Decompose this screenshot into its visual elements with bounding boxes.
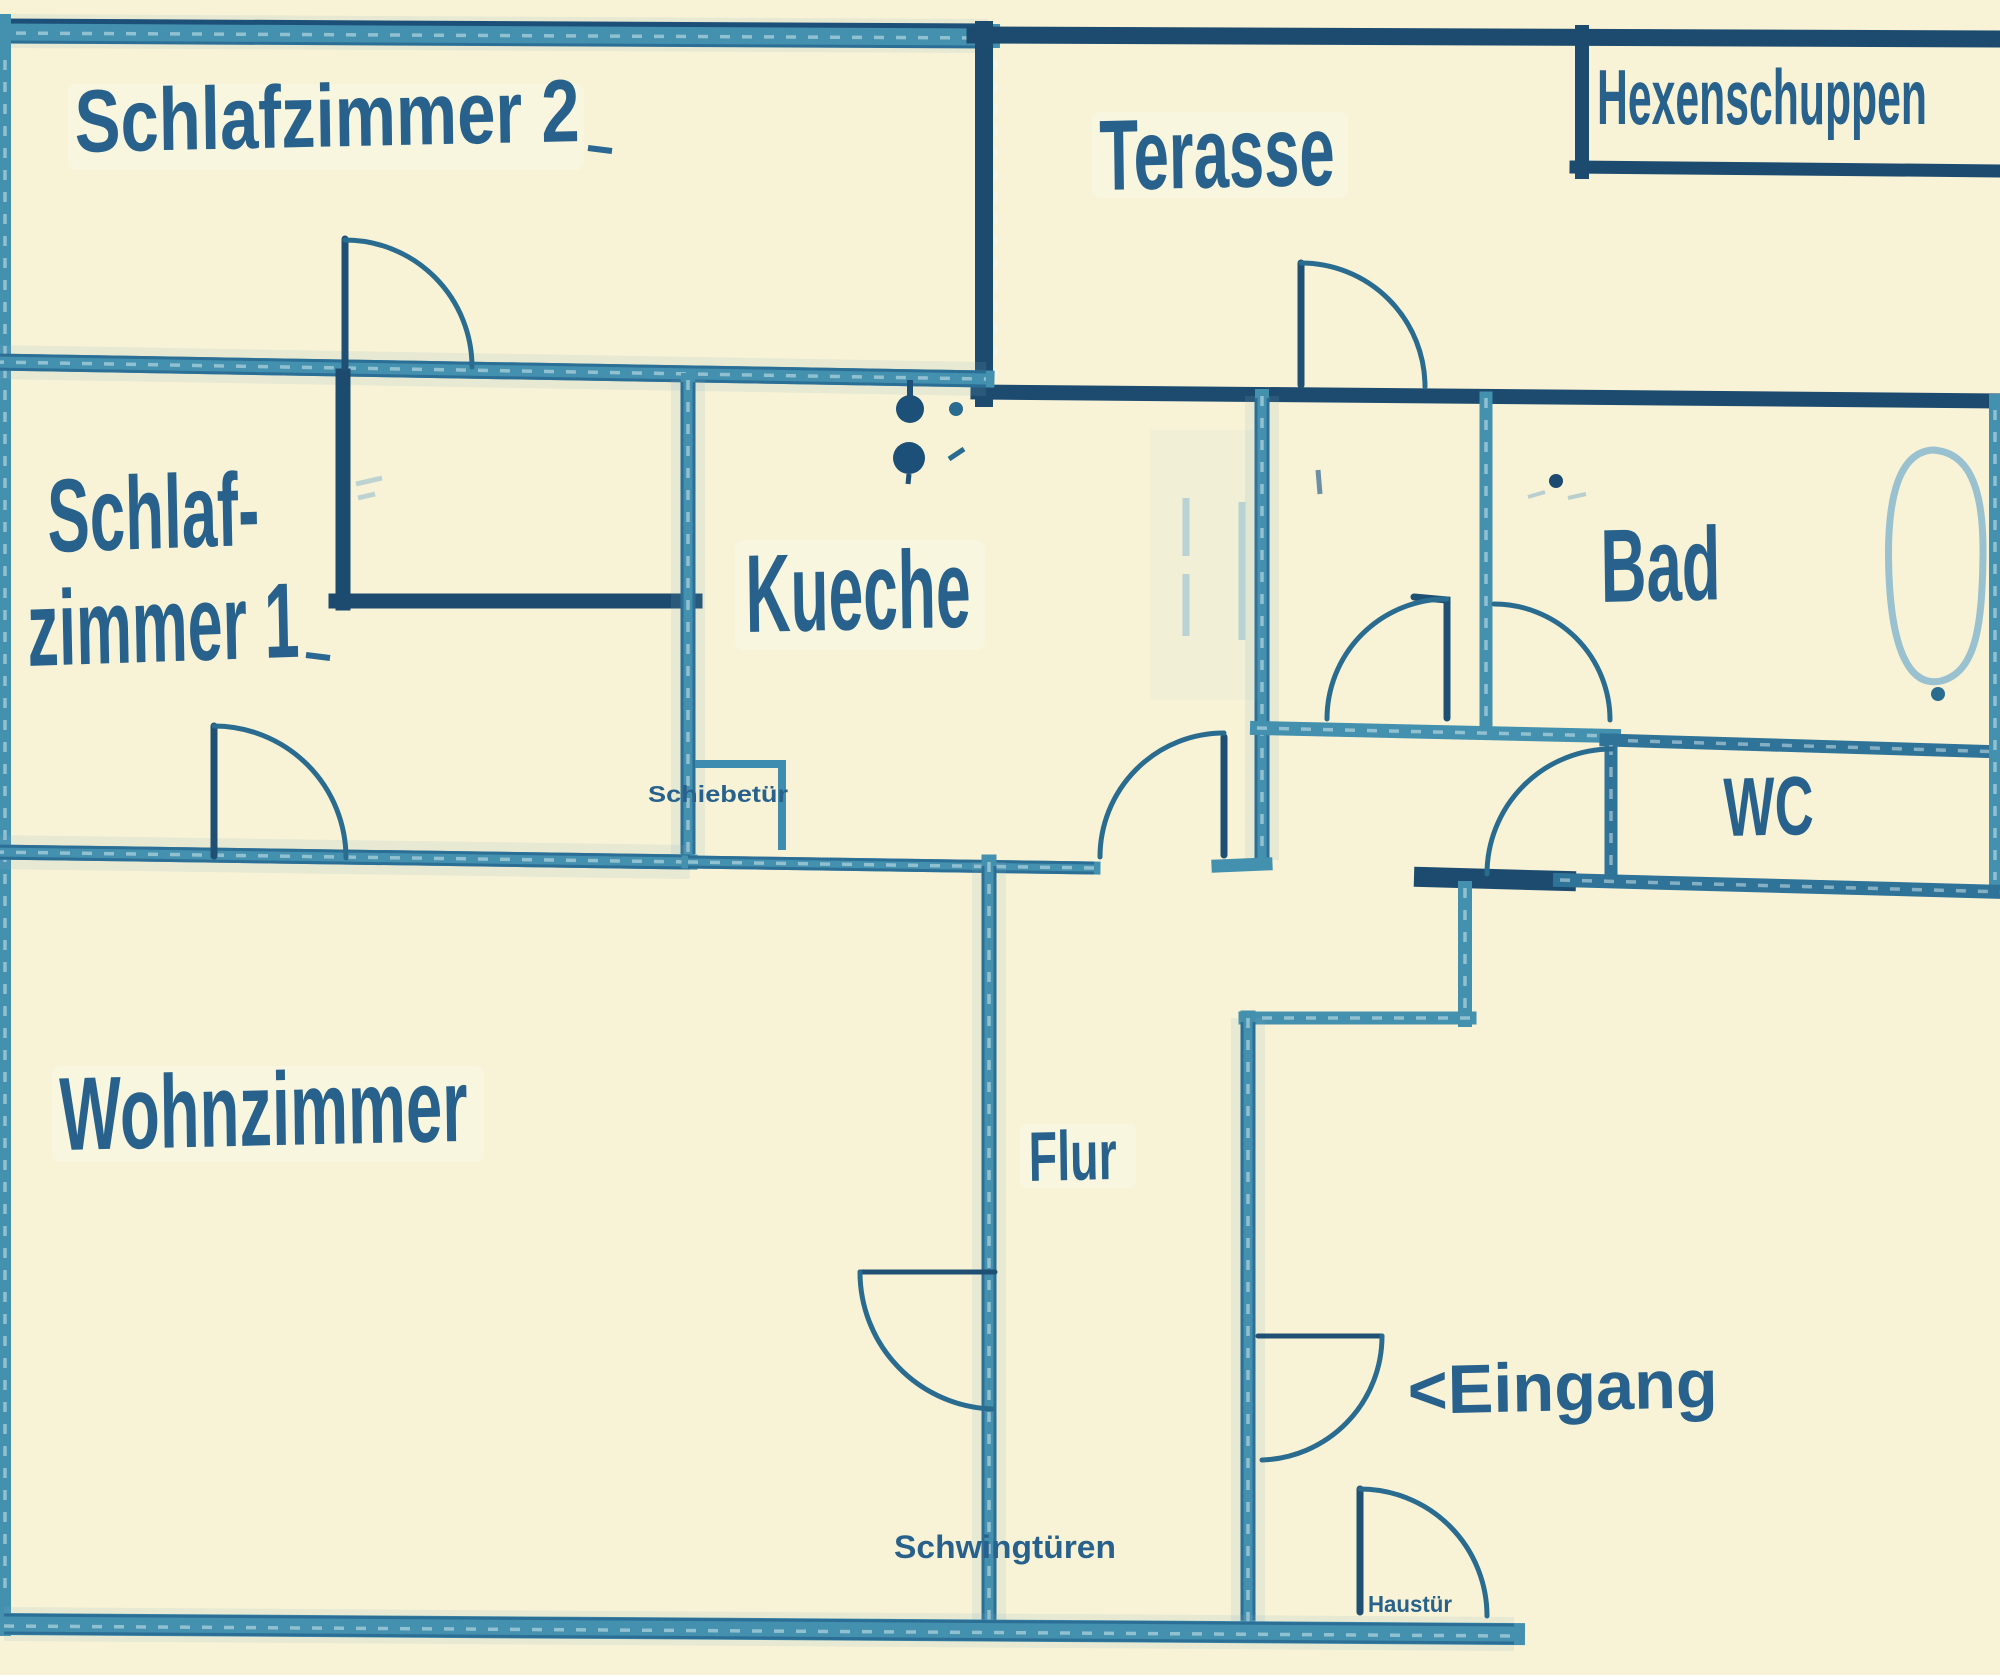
- svg-text:Terasse: Terasse: [1099, 94, 1335, 211]
- svg-text:Schlaf-: Schlaf-: [46, 451, 260, 575]
- svg-text:WC: WC: [1723, 759, 1814, 854]
- svg-text:Wohnzimmer: Wohnzimmer: [59, 1047, 469, 1173]
- svg-text:Bad: Bad: [1600, 505, 1722, 624]
- svg-text:Schwingtüren: Schwingtüren: [894, 1530, 1116, 1566]
- svg-text:<Eingang: <Eingang: [1407, 1345, 1718, 1429]
- svg-text:Schlafzimmer 2: Schlafzimmer 2: [74, 61, 580, 171]
- svg-text:Hexenschuppen: Hexenschuppen: [1597, 53, 1927, 140]
- svg-text:Flur: Flur: [1028, 1116, 1117, 1196]
- svg-text:Schiebetür: Schiebetür: [648, 781, 788, 807]
- svg-text:Kueche: Kueche: [745, 527, 972, 656]
- svg-text:zimmer 1: zimmer 1: [26, 561, 300, 689]
- svg-text:Haustür: Haustür: [1368, 1591, 1452, 1617]
